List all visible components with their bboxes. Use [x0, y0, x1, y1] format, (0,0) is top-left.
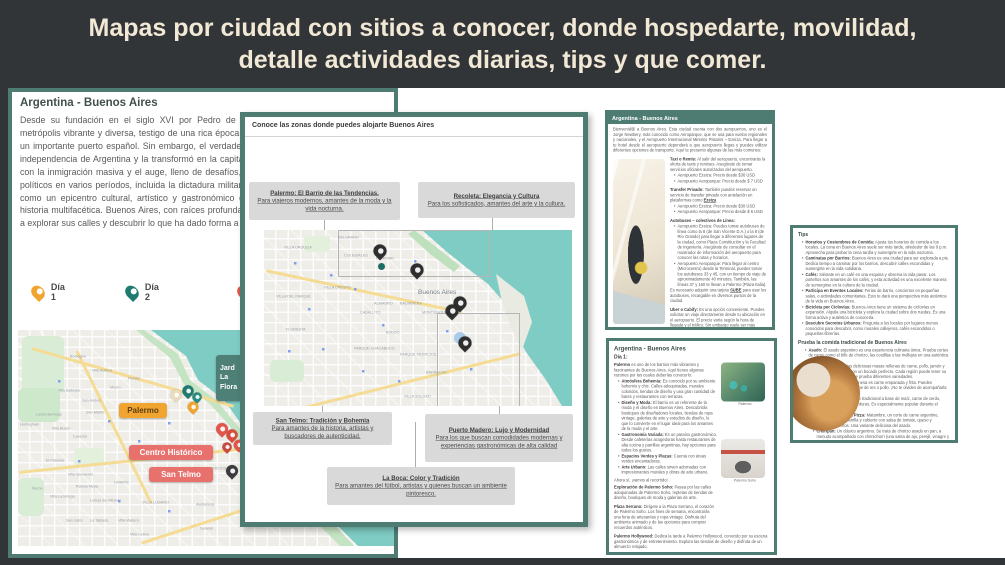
day-bullet: •Diseño y Moda: El barrio es un referent…	[618, 400, 717, 432]
day-bullet: •Espacios Verdes y Plazas: Cuenta con ár…	[618, 454, 717, 465]
photo-palermo	[721, 363, 765, 402]
stop-plaza-serrano: Plaza Serrano: Dirígete a la Plaza Serra…	[614, 504, 717, 530]
map-place-label: PARQUE PATRICIOS	[400, 352, 436, 357]
map-place-label: BELGRANO	[338, 235, 359, 240]
map-place-label: Caseros	[73, 434, 87, 439]
callout-desc: Para amantes del fútbol, artistas y quie…	[331, 482, 511, 497]
slide-title-line2: detalle actividades diarias, tips y que …	[0, 44, 1005, 76]
day-bullet: •Arte Urbano: Las calles sirven adornada…	[618, 465, 717, 476]
transit-stop-icon	[138, 440, 141, 443]
slide: Mapas por ciudad con sitios a conocer, d…	[0, 0, 1005, 565]
section-uber: Uber o Cabify: Es una opción conveniente…	[670, 307, 767, 327]
transit-stop-icon	[322, 348, 325, 351]
map-place-label: LINIERS	[114, 480, 129, 485]
callout-title[interactable]: Recoleta: Elegancia y Cultura	[454, 192, 540, 200]
divider	[245, 136, 583, 137]
map-place-label: BARRACAS	[426, 370, 447, 375]
bullet-item: •Aeropuerto Ezeiza: Precio desde $30 USD	[674, 173, 767, 178]
map-place-label: COLEGIALES	[344, 253, 368, 258]
callout-desc: Para los que buscan comodidades modernas…	[429, 434, 569, 449]
food-section: •Asado: El asado argentino es una experi…	[798, 348, 950, 440]
map-place-label: VILLA DEL PARQUE	[276, 294, 311, 299]
transit-stop-icon	[354, 288, 357, 291]
map-place-label: CABALLITO	[360, 310, 381, 315]
day1-pin-icon	[28, 282, 47, 301]
photo-caption: Palermo Soho	[721, 479, 769, 483]
transit-stop-icon	[288, 350, 291, 353]
transit-stop-icon	[470, 368, 473, 371]
map-place-label: Boulogne	[70, 354, 86, 359]
chip-centro-historico[interactable]: Centro Histórico	[129, 445, 213, 460]
transit-stop-icon	[58, 380, 61, 383]
map-place-label: Villa Madero	[118, 518, 139, 523]
section-transfer: Transfer Privado: También puedes reserva…	[670, 188, 767, 215]
transit-stop-icon	[118, 500, 121, 503]
day-intro: Palermo es uno de los barrios más vibran…	[614, 363, 717, 379]
panel-tips: Tips •Horarios y Costumbres de Comida: A…	[790, 225, 958, 443]
transfer-link[interactable]: Ezeiza	[704, 198, 717, 203]
tips-title: Tips	[798, 232, 950, 238]
tip-item: •Bicicleta por Ciclovías: Buenos Aires t…	[802, 305, 950, 321]
transit-stop-icon	[398, 380, 401, 383]
map-place-label: Sarandí	[200, 526, 213, 531]
callout-title[interactable]: Puerto Madero: Lujo y Modernidad	[449, 427, 550, 435]
chip-san-telmo[interactable]: San Telmo	[149, 467, 213, 482]
map-place-label: Loma Hermosa	[36, 412, 62, 417]
map-place-label: Buenos Aires	[418, 288, 456, 296]
transit-stop-icon	[382, 324, 385, 327]
section-lead: Uber o Cabify:	[670, 307, 698, 312]
section-lead: Autobuses – colectivos de Línea:	[670, 218, 735, 223]
stop-palermo-soho: Exploración de Palermo Soho: Pasea por l…	[614, 485, 717, 501]
stop-palermo-hollywood: Palermo Hollywood: Dedica la tarde a Pal…	[614, 534, 769, 550]
map-place-label: Villa Bosch	[52, 426, 70, 431]
callout-desc: Para amantes de la historia, artistas y …	[257, 425, 388, 440]
map-place-label: Lomas del Mirador	[90, 498, 121, 503]
tip-item: •Cafés: Siéntate en un café en una esqui…	[802, 272, 950, 288]
map-place-label: VILLA LUGANO	[142, 500, 169, 505]
chip-jardin-line: Flora	[220, 383, 237, 392]
transit-stop-icon	[78, 460, 81, 463]
tip-item: •Horarios y Costumbres de Comida: Ajusta…	[802, 240, 950, 256]
panel-day1-itinerary: Argentina - Buenos Aires Día 1: Palermo …	[606, 338, 777, 555]
callout-title[interactable]: San Telmo: Tradición y Bohemia	[276, 417, 370, 425]
transit-stop-icon	[308, 308, 311, 311]
zones-title: Conoce las zonas donde puedes alojarte B…	[252, 122, 434, 129]
map-place-label: Ramos Mejía	[76, 484, 98, 489]
map-place-label: ALMAGRO	[374, 301, 393, 306]
bullet-item: •Aeropuerto Ezeiza: Puedes tomar autobus…	[674, 224, 767, 261]
chip-jardin-line: La	[220, 373, 228, 382]
map-place-label: VILLA CRESPO	[324, 285, 351, 290]
chip-jardin-line: Jard	[220, 364, 235, 373]
map-place-label: PARQUE CHACABUCO	[354, 346, 395, 351]
map-place-label: Hurlingham	[20, 422, 39, 427]
transit-stop-icon	[330, 274, 333, 277]
tip-item: •Descubre Secretos Urbanos: Pregunta a l…	[802, 321, 950, 337]
map-labels-layer: BELGRANOVILLA URQUIZACOLEGIALESPALERMOVI…	[264, 230, 572, 406]
section-lead: Transfer Privado:	[670, 188, 704, 193]
zones-map[interactable]: BELGRANOVILLA URQUIZACOLEGIALESPALERMOVI…	[264, 230, 572, 406]
legend-day-1: Día 1	[32, 282, 68, 302]
bullet-item: •Aeropuerto Aeroparque: Precio desde $ 6…	[674, 210, 767, 215]
callout-recoleta[interactable]: Recoleta: Elegancia y CulturaPara los so…	[418, 182, 575, 218]
callout-desc: Para los sofisticados, amantes del arte …	[428, 200, 566, 208]
callout-san-telmo[interactable]: San Telmo: Tradición y BohemiaPara amant…	[253, 412, 392, 445]
callout-la-boca[interactable]: La Boca: Color y TradiciónPara amantes d…	[327, 467, 515, 505]
transit-stop-icon	[446, 330, 449, 333]
transport-header: Argentina - Buenos Aires	[608, 113, 772, 124]
callout-title[interactable]: La Boca: Color y Tradición	[382, 475, 459, 483]
legend-label: Día 2	[145, 282, 162, 302]
sube-note: Es necesario adquirir una tarjeta SUBE p…	[670, 288, 767, 304]
photo-palermo-soho	[721, 439, 765, 478]
transit-stop-icon	[168, 422, 171, 425]
map-place-label: Villa Sarmiento	[68, 472, 93, 477]
map-place-label: San Andrés	[82, 398, 101, 403]
bullet-item: •Aeropuerto Aeroparque: Para llegar al c…	[674, 261, 767, 287]
transit-stop-icon	[168, 510, 171, 513]
day-bullet: •Gastronomía Variada: Es un paraíso gast…	[618, 432, 717, 453]
map-place-label: Morón	[32, 486, 43, 491]
map-place-label: Villa Luzuriaga	[50, 494, 75, 499]
city-title: Argentina - Buenos Aires	[20, 97, 158, 109]
sube-link[interactable]: SUBE	[730, 288, 741, 293]
section-taxi: Taxi o Remis: Al salir del aeropuerto, e…	[670, 157, 767, 184]
palermo-dot-marker	[378, 263, 385, 270]
panel-lodging-zones: Conoce las zonas donde puedes alojarte B…	[240, 112, 588, 527]
legend-day-2: Día 2	[126, 282, 162, 302]
connector-line	[415, 422, 416, 467]
map-place-label: El Palomar	[46, 458, 64, 463]
transit-stop-icon	[294, 262, 297, 265]
transit-stop-icon	[108, 420, 111, 423]
food-item: •Choripán: Un clásico argentino. Se trat…	[813, 429, 950, 440]
map-place-label: San Justo	[66, 518, 83, 523]
food-title: Prueba la comida tradicional de Buenos A…	[798, 340, 950, 346]
callout-puerto-madero[interactable]: Puerto Madero: Lujo y ModernidadPara los…	[425, 414, 573, 462]
legend-label: Día 1	[51, 282, 68, 302]
transit-stop-icon	[362, 370, 365, 373]
callout-title[interactable]: Palermo: El Barrio de las Tendencias.	[270, 190, 379, 198]
map-place-label: Munro	[110, 385, 121, 390]
map-place-label: VILLA URQUIZA	[284, 245, 312, 250]
map-place-label: Florida	[128, 376, 139, 381]
map-place-label: La Tablada	[90, 518, 108, 523]
day-panel-title: Argentina - Buenos Aires	[614, 345, 769, 353]
photo-airport-traveler	[613, 159, 665, 324]
map-place-label: San Martín	[86, 410, 104, 415]
map-place-label: Villa Celina	[130, 532, 149, 537]
tip-item: •Caminatas por Barrios: Buenos Aires es …	[802, 256, 950, 272]
map-place-label: Villa Ballester	[58, 388, 81, 393]
map-place-label: Villa Adelina	[92, 368, 112, 373]
slide-title: Mapas por ciudad con sitios a conocer, d…	[0, 0, 1005, 88]
chip-palermo[interactable]: Palermo	[119, 403, 167, 418]
map-place-label: Avellaneda	[196, 502, 214, 507]
day-label: Día 1:	[614, 355, 628, 361]
day-bullet: •Atmósfera Bohemia: Es conocido por su a…	[618, 379, 717, 400]
map-place-label: FLORESTA	[286, 327, 306, 332]
transport-intro: Bienvenid@ a Buenos Aires. Esta ciudad c…	[613, 127, 767, 153]
callout-desc: Para viajeros modernos, amantes de la mo…	[253, 197, 396, 212]
callout-palermo[interactable]: Palermo: El Barrio de las Tendencias.Par…	[249, 182, 400, 220]
map-place-label: BOEDO	[386, 330, 400, 335]
photo-caption: Palermo	[721, 403, 769, 407]
panel-transport: Argentina - Buenos Aires Bienvenid@ a Bu…	[605, 110, 775, 330]
map-place-label: VILLA SOLDATI	[404, 394, 431, 399]
go-line: Ahora sí, ¡vamos al recorrido!	[614, 478, 717, 483]
map-place-label: BALVANERA	[400, 301, 422, 306]
bullet-item: •Aeropuerto Aeroparque: Precio desde $ 7…	[674, 179, 767, 184]
day2-pin-icon	[122, 282, 141, 301]
section-buses: Autobuses – colectivos de Línea: •Aeropu…	[670, 218, 767, 304]
section-lead: Taxi o Remis:	[670, 157, 696, 162]
bullet-item: •Aeropuerto Ezeiza: Precio desde $30 USD	[674, 204, 767, 209]
slide-title-line1: Mapas por ciudad con sitios a conocer, d…	[0, 12, 1005, 44]
tip-item: •Participa en Eventos Locales: Ferias de…	[802, 289, 950, 305]
